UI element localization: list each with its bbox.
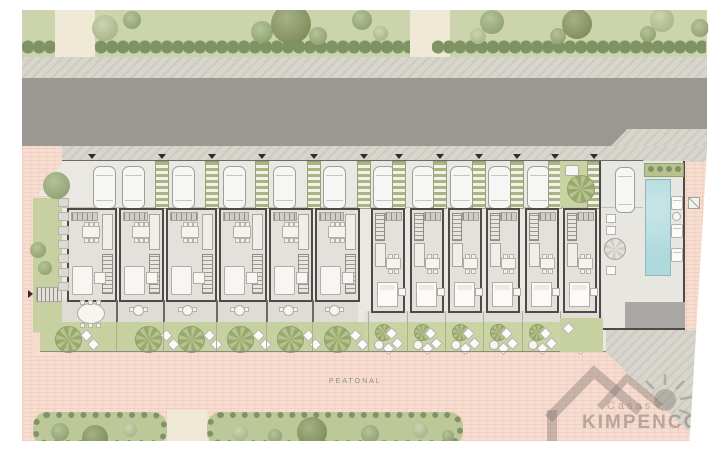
chair	[503, 254, 508, 259]
park-tree	[480, 10, 504, 34]
kitchen-counter	[71, 212, 98, 221]
pergola-separator	[155, 161, 169, 209]
stepping-stone	[58, 212, 69, 221]
car	[488, 166, 511, 209]
kitchen-counter	[577, 212, 594, 221]
bed	[492, 282, 513, 307]
entry-arrow-icon	[88, 154, 96, 159]
garden-fence	[522, 322, 523, 352]
stairs	[375, 213, 385, 241]
sun-lounger	[671, 224, 683, 238]
service-pad	[625, 302, 685, 328]
sofa	[124, 266, 145, 295]
promenade-label: PEATONAL	[329, 378, 382, 385]
hedge-row	[95, 38, 410, 57]
bed	[454, 282, 475, 307]
sofa	[320, 266, 341, 295]
plant	[657, 166, 663, 172]
park-tree	[373, 26, 388, 41]
chair	[192, 307, 197, 312]
entry-arrow-icon	[590, 154, 598, 159]
plant	[648, 166, 654, 172]
chair	[96, 323, 101, 328]
logo-text-kimpenco: KIMPENCO	[582, 412, 700, 434]
dining-table	[328, 226, 346, 238]
bathroom	[298, 214, 309, 250]
terrace-table	[77, 303, 105, 324]
dining-table	[425, 258, 440, 269]
garden-fence	[163, 322, 164, 352]
car	[615, 167, 635, 213]
car	[223, 166, 246, 209]
bed	[416, 282, 437, 307]
bathroom	[345, 214, 356, 250]
porch-divider	[445, 311, 446, 322]
unit-B-9	[448, 208, 482, 313]
bathroom	[529, 243, 540, 267]
side-table	[437, 288, 445, 296]
chair	[509, 269, 514, 274]
car	[122, 166, 145, 209]
unit-A-4	[219, 208, 267, 302]
bathroom	[567, 243, 578, 267]
garden-fence	[407, 322, 408, 352]
pergola-separator	[307, 161, 321, 209]
dining-table	[463, 258, 478, 269]
side-table	[398, 288, 406, 296]
kitchen-counter	[500, 212, 517, 221]
chair	[245, 238, 250, 243]
bed	[569, 282, 590, 307]
entry-arrow-icon	[395, 154, 403, 159]
hedge-row	[22, 38, 55, 57]
road	[22, 78, 707, 146]
bench	[565, 165, 579, 176]
dining-table	[501, 258, 516, 269]
chair	[580, 254, 585, 259]
dining-table	[540, 258, 555, 269]
park-tree	[650, 8, 674, 32]
pergola-separator	[510, 161, 524, 209]
chair	[606, 226, 616, 235]
corner-tree	[43, 172, 70, 199]
garden-fence	[266, 322, 267, 352]
chair	[471, 269, 476, 274]
park-tree	[123, 11, 141, 29]
unit-B-7	[371, 208, 405, 313]
pergola-separator	[472, 161, 486, 209]
garden-fence	[116, 322, 117, 352]
kitchen-counter	[462, 212, 479, 221]
chair	[606, 214, 616, 223]
park-tree	[251, 21, 273, 43]
chair	[548, 254, 553, 259]
park-tree	[691, 19, 709, 37]
garden-tree	[178, 326, 205, 353]
chair	[388, 269, 393, 274]
garden-tree	[55, 326, 82, 353]
unit-A-1	[67, 208, 117, 302]
stepping-stone	[58, 240, 69, 249]
kitchen-counter	[319, 212, 344, 221]
chair	[88, 323, 93, 328]
unit-A-5	[269, 208, 313, 302]
sofa	[171, 266, 192, 295]
car	[323, 166, 346, 209]
stepping-stone	[58, 268, 69, 277]
chair	[193, 238, 198, 243]
kitchen-counter	[223, 212, 249, 221]
chair	[471, 254, 476, 259]
stepping-stone	[58, 198, 69, 207]
porch-divider	[522, 311, 523, 322]
garden-fence	[483, 322, 484, 352]
porch-divider	[407, 311, 408, 322]
sidewalk-upper	[22, 57, 707, 78]
garden-bush	[232, 425, 248, 441]
unit-A-6	[315, 208, 360, 302]
coffee-table	[296, 272, 308, 284]
kitchen-counter	[273, 212, 297, 221]
chair	[230, 307, 235, 312]
side-table	[672, 212, 681, 221]
stairs	[529, 213, 539, 241]
margin-left	[0, 0, 22, 450]
side-table	[513, 288, 521, 296]
chair	[548, 269, 553, 274]
park-tree	[309, 27, 327, 45]
stairs	[414, 213, 424, 241]
garden-tree	[38, 261, 52, 275]
park-tree	[562, 9, 592, 39]
entry-arrow-icon	[310, 154, 318, 159]
bathroom	[149, 214, 160, 250]
garden-fence	[312, 322, 313, 352]
kitchen-counter	[123, 212, 148, 221]
chair	[339, 307, 344, 312]
swimming-pool	[645, 179, 671, 276]
side-table	[475, 288, 483, 296]
stepping-stone	[58, 282, 69, 291]
pool-equipment	[688, 197, 700, 209]
chair	[606, 266, 616, 275]
coffee-table	[146, 272, 158, 284]
bed	[531, 282, 552, 307]
terrace-divider	[266, 300, 268, 322]
entry-arrow-icon	[28, 290, 33, 298]
sun-lounger	[671, 196, 683, 210]
car	[527, 166, 550, 209]
chair	[129, 307, 134, 312]
sofa	[72, 266, 93, 295]
unit-B-10	[486, 208, 520, 313]
garden-bush	[123, 423, 137, 437]
stairs	[567, 213, 577, 241]
dining-table	[132, 226, 150, 238]
terrace-divider	[116, 300, 118, 322]
garden-tree	[30, 242, 46, 258]
garden-tree	[324, 326, 351, 353]
garden-fence	[216, 322, 217, 352]
bathroom	[202, 214, 213, 250]
park-tree	[352, 10, 372, 30]
sofa	[224, 266, 245, 295]
plant	[675, 166, 681, 172]
sun-lounger	[671, 248, 683, 262]
kitchen-counter	[539, 212, 556, 221]
entry-arrow-icon	[475, 154, 483, 159]
entry-arrow-icon	[158, 154, 166, 159]
tree	[567, 175, 595, 203]
chair	[509, 254, 514, 259]
car	[172, 166, 195, 209]
side-table	[590, 288, 598, 296]
pergola-separator	[433, 161, 447, 209]
park-path	[55, 10, 95, 57]
entry-arrow-icon	[551, 154, 559, 159]
chair	[143, 307, 148, 312]
chair	[394, 269, 399, 274]
chair	[94, 222, 99, 227]
park-tree	[271, 4, 311, 44]
stairs	[490, 213, 500, 241]
chair	[293, 307, 298, 312]
entry-arrow-icon	[208, 154, 216, 159]
terrace-divider	[312, 300, 314, 322]
terrace-divider	[216, 300, 218, 322]
chair	[433, 254, 438, 259]
chair	[394, 254, 399, 259]
entry-arrow-icon	[436, 154, 444, 159]
coffee-table	[193, 272, 205, 284]
chair	[325, 307, 330, 312]
garden-fence	[445, 322, 446, 352]
garden-bush	[51, 423, 69, 441]
chair	[279, 307, 284, 312]
chair	[542, 254, 547, 259]
stepping-stone	[58, 254, 69, 263]
logo-text-casas: Casas	[595, 400, 665, 412]
kitchen-counter	[385, 212, 402, 221]
car	[450, 166, 473, 209]
pool-round-table	[604, 238, 626, 260]
dining-table	[82, 226, 100, 238]
chair	[433, 269, 438, 274]
park-tree	[92, 15, 118, 41]
pergola-separator	[357, 161, 371, 209]
chair	[503, 269, 508, 274]
pool-wall-bottom	[599, 328, 685, 330]
garden-fence	[368, 322, 369, 352]
plant	[666, 166, 672, 172]
terrace-divider	[163, 300, 165, 322]
dining-table	[181, 226, 199, 238]
sofa	[274, 266, 295, 295]
unit-B-12	[563, 208, 597, 313]
chair	[427, 254, 432, 259]
chair	[96, 300, 101, 305]
parking-garden-cell	[560, 161, 587, 207]
kitchen-counter	[170, 212, 198, 221]
chair	[245, 222, 250, 227]
chair	[580, 269, 585, 274]
stairs	[452, 213, 462, 241]
coffee-table	[342, 272, 354, 284]
bathroom	[375, 243, 386, 267]
pool-wall-left	[599, 161, 601, 330]
chair	[427, 269, 432, 274]
chair	[80, 300, 85, 305]
chair	[542, 269, 547, 274]
chair	[465, 269, 470, 274]
unit-A-3	[166, 208, 217, 302]
porch-divider	[368, 311, 369, 322]
chair	[586, 254, 591, 259]
bathroom	[452, 243, 463, 267]
chair	[388, 254, 393, 259]
chair	[88, 300, 93, 305]
chair	[178, 307, 183, 312]
site-boundary-bottom	[40, 351, 606, 352]
car	[412, 166, 435, 209]
bed	[377, 282, 398, 307]
dining-table	[386, 258, 401, 269]
chair	[80, 323, 85, 328]
porch-divider	[483, 311, 484, 322]
unit-B-8	[410, 208, 444, 313]
bathroom	[414, 243, 425, 267]
stepping-stone	[58, 226, 69, 235]
brand-watermark: Casas KIMPENCO	[532, 358, 717, 448]
dining-table	[233, 226, 251, 238]
pergola-separator	[255, 161, 269, 209]
car	[273, 166, 296, 209]
garden-tree	[135, 326, 162, 353]
garden-tree	[227, 326, 254, 353]
kitchen-counter	[424, 212, 441, 221]
dining-table	[578, 258, 593, 269]
margin-top	[0, 0, 725, 10]
garden-bush	[412, 422, 428, 438]
entry-arrow-icon	[258, 154, 266, 159]
site-plan-canvas: PEATONAL Casas KIMPENCO	[0, 0, 725, 450]
side-table	[552, 288, 560, 296]
coffee-table	[246, 272, 258, 284]
garden-tree	[277, 326, 304, 353]
bathroom	[102, 214, 113, 250]
chair	[586, 269, 591, 274]
car	[93, 166, 116, 209]
chair	[94, 238, 99, 243]
bathroom	[490, 243, 501, 267]
coffee-table	[94, 272, 106, 284]
bottom-garden-path	[167, 410, 207, 441]
entry-arrow-icon	[513, 154, 521, 159]
chair	[465, 254, 470, 259]
bathroom	[252, 214, 263, 250]
chair	[193, 222, 198, 227]
entry-arrow-icon	[360, 154, 368, 159]
pergola-separator	[392, 161, 406, 209]
pergola-separator	[205, 161, 219, 209]
chair	[244, 307, 249, 312]
unit-A-2	[119, 208, 164, 302]
unit-B-11	[525, 208, 559, 313]
margin-bottom	[0, 441, 725, 450]
